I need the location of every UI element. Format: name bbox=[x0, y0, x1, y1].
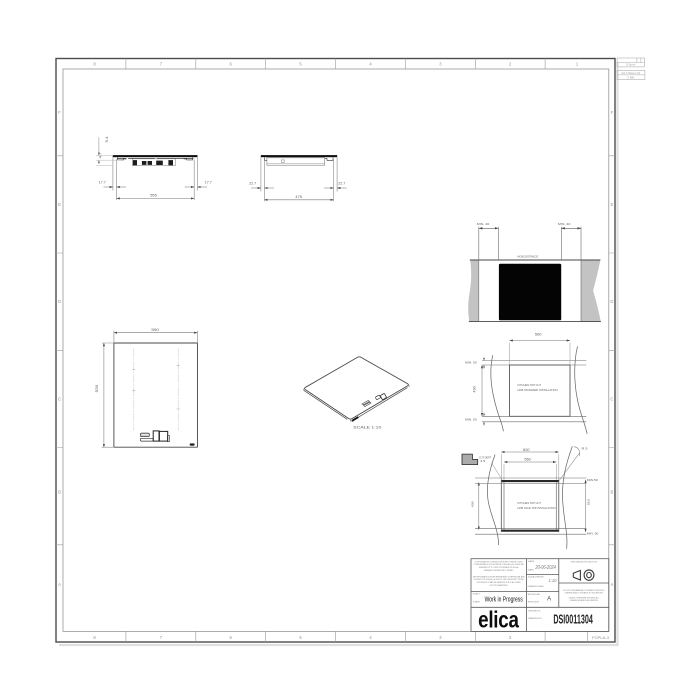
svg-text:0.5mm: 0.5mm bbox=[626, 63, 635, 67]
svg-text:HOB STANDARD INSTALLATION: HOB STANDARD INSTALLATION bbox=[518, 388, 558, 392]
svg-text:CONFIDENZIALI E DI PROPRIETA': CONFIDENZIALI E DI PROPRIETA' DI ELICA S… bbox=[474, 563, 525, 566]
svg-text:DIMENSION AND TOLERANCE ISO 80: DIMENSION AND TOLERANCE ISO 8015 APPLIES bbox=[565, 591, 604, 594]
svg-text:520: 520 bbox=[95, 385, 99, 393]
svg-text:590: 590 bbox=[151, 328, 159, 332]
svg-text:THE INFORMATION GIVEN HEREIN A: THE INFORMATION GIVEN HEREIN ARE CONFIDE… bbox=[473, 575, 525, 578]
svg-text:elica: elica bbox=[478, 607, 519, 633]
svg-text:A: A bbox=[547, 597, 551, 603]
svg-text:R 5: R 5 bbox=[582, 447, 588, 451]
svg-text:Work in Progress: Work in Progress bbox=[485, 594, 523, 603]
svg-text:B: B bbox=[611, 490, 614, 495]
svg-text:HOB FACE TOP INSTALLATION: HOB FACE TOP INSTALLATION bbox=[518, 506, 556, 510]
svg-text:FGPLA-3: FGPLA-3 bbox=[592, 636, 609, 640]
svg-text:DATE: DATE bbox=[528, 569, 535, 572]
svg-text:C: C bbox=[610, 396, 613, 401]
svg-text:E: E bbox=[58, 202, 61, 207]
svg-text:D: D bbox=[610, 299, 613, 304]
svg-text:IS PROHIBITED: IS PROHIBITED bbox=[490, 585, 509, 587]
svg-text:MIN.50: MIN.50 bbox=[587, 478, 599, 482]
svg-text:FIRST ANGLE PROJECTION: FIRST ANGLE PROJECTION bbox=[571, 560, 597, 563]
svg-text:D: D bbox=[58, 299, 61, 304]
svg-text:MIN. 50: MIN. 50 bbox=[465, 417, 477, 421]
svg-text:20-06-2024: 20-06-2024 bbox=[535, 565, 556, 571]
svg-text:HOB DISTANCE: HOB DISTANCE bbox=[517, 255, 538, 259]
svg-text:22.7: 22.7 bbox=[338, 182, 345, 186]
svg-text:DATA: DATA bbox=[528, 560, 535, 563]
svg-text:F: F bbox=[58, 110, 61, 115]
svg-text:DIMENSIONS ARE IN MILLIMETERS: DIMENSIONS ARE IN MILLIMETERS bbox=[570, 599, 599, 602]
svg-text:F: F bbox=[611, 110, 614, 115]
svg-text:KITCHEN TOP CUT: KITCHEN TOP CUT bbox=[518, 383, 542, 387]
svg-text:SCALE 1:10: SCALE 1:10 bbox=[353, 425, 381, 429]
svg-text:4.7: 4.7 bbox=[99, 152, 103, 158]
svg-text:MIN. 40: MIN. 40 bbox=[477, 222, 490, 226]
svg-text:MIN. 50: MIN. 50 bbox=[465, 361, 477, 365]
svg-text:DSI0011304: DSI0011304 bbox=[553, 612, 593, 627]
svg-text:560: 560 bbox=[535, 333, 542, 337]
svg-text:LE INFORMAZIONI CONTENUTE IN Q: LE INFORMAZIONI CONTENUTE IN QUESTO DISE… bbox=[475, 560, 523, 563]
svg-text:AA 4 Sheet 1/1: AA 4 Sheet 1/1 bbox=[621, 71, 640, 75]
svg-text:MIN. 50: MIN. 50 bbox=[587, 532, 599, 536]
svg-text:FOR WHICH IT MAY BE GRANTED IS: FOR WHICH IT MAY BE GRANTED IS NOT ALLOW… bbox=[477, 581, 521, 584]
svg-text:22.7: 22.7 bbox=[249, 182, 256, 186]
svg-text:SENZA AUTORIZZAZIONE E' VIETAT: SENZA AUTORIZZAZIONE E' VIETATO bbox=[484, 569, 514, 572]
svg-text:5.4: 5.4 bbox=[105, 136, 109, 142]
svg-text:DRAWING NO: DRAWING NO bbox=[528, 617, 542, 620]
svg-text:17.7: 17.7 bbox=[99, 180, 106, 184]
svg-text:475: 475 bbox=[295, 195, 302, 199]
svg-text:STATE: STATE bbox=[473, 600, 481, 603]
svg-text:490: 490 bbox=[470, 501, 474, 507]
svg-text:C: C bbox=[58, 396, 61, 401]
svg-text:RISERVA TUTTI I DIRITTI A TERM: RISERVA TUTTI I DIRITTI A TERMINI DI LEG… bbox=[479, 566, 520, 569]
svg-text:490: 490 bbox=[473, 386, 477, 393]
svg-text:DRAWING SCALE: DRAWING SCALE bbox=[528, 585, 544, 588]
svg-text:REVISIONE: REVISIONE bbox=[528, 594, 541, 596]
svg-text:REVISION: REVISION bbox=[528, 602, 539, 604]
svg-text:510: 510 bbox=[586, 499, 590, 505]
svg-text:17.7: 17.7 bbox=[205, 180, 212, 184]
svg-text:KITCHEN TOP CUT: KITCHEN TOP CUT bbox=[518, 501, 542, 505]
svg-text:MIN. 40: MIN. 40 bbox=[558, 222, 571, 226]
svg-text:560: 560 bbox=[524, 458, 531, 462]
svg-text:600: 600 bbox=[523, 448, 530, 452]
svg-text:555: 555 bbox=[150, 194, 157, 198]
svg-text:PROPERTY OF ELICA S.p.A. GROUP: PROPERTY OF ELICA S.p.A. GROUP - ANY USE… bbox=[474, 578, 524, 581]
svg-text:A: A bbox=[58, 582, 61, 587]
svg-text:E: E bbox=[611, 202, 614, 207]
svg-text:STATO: STATO bbox=[473, 593, 480, 596]
svg-text:1:10: 1:10 bbox=[549, 578, 558, 583]
svg-text:4.5: 4.5 bbox=[480, 459, 485, 463]
svg-text:A: A bbox=[611, 582, 614, 587]
svg-text:2 MK: 2 MK bbox=[627, 76, 634, 80]
svg-text:DISEGNO N.: DISEGNO N. bbox=[528, 610, 541, 612]
svg-text:SCALA DISEGNO: SCALA DISEGNO bbox=[528, 576, 544, 579]
svg-text:B: B bbox=[58, 490, 61, 495]
